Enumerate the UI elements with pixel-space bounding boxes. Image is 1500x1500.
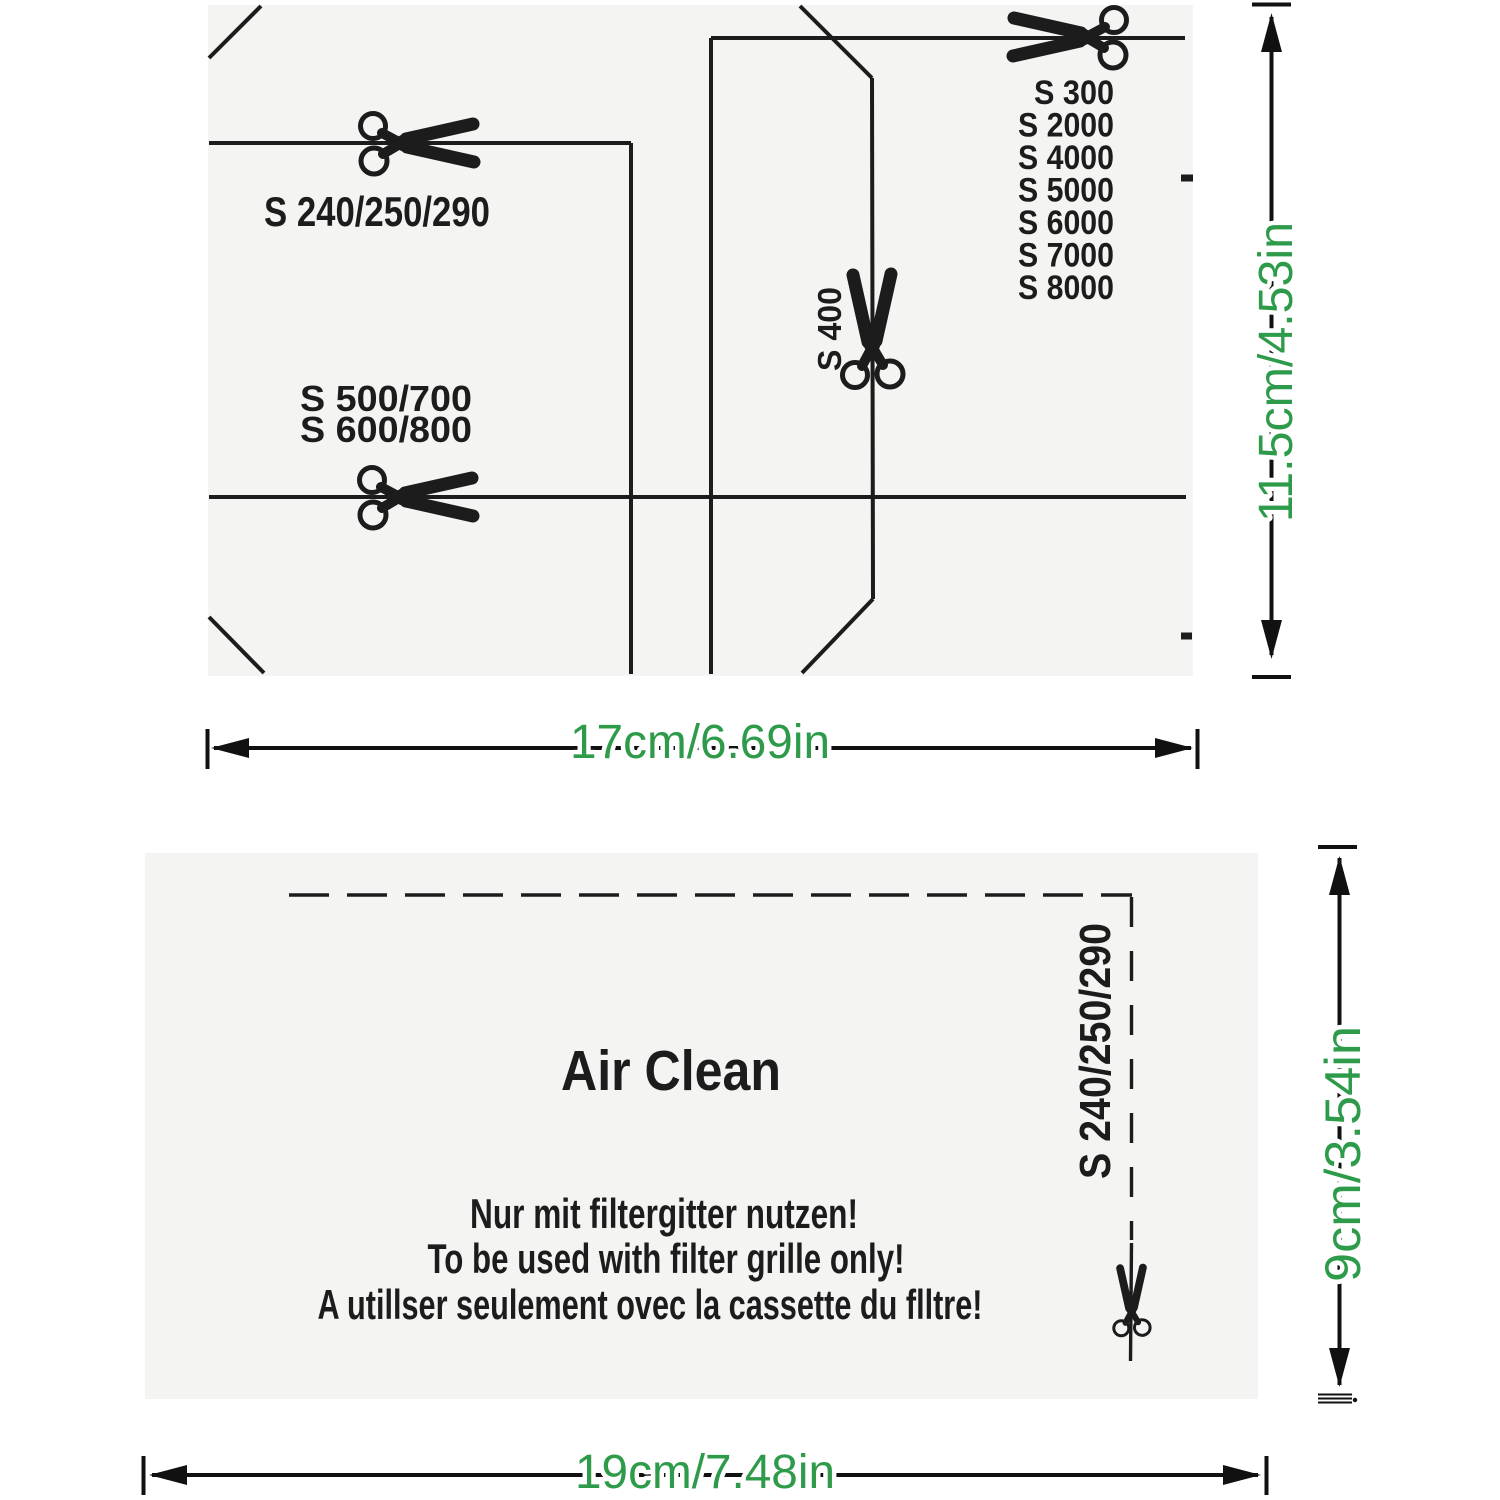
svg-text:S 240/250/290: S 240/250/290 [264,188,490,235]
svg-text:To be used with filter grille: To be used with filter grille only! [428,1235,905,1282]
svg-text:S 600/800: S 600/800 [300,409,472,450]
svg-text:9cm/3.54in: 9cm/3.54in [1315,1026,1371,1282]
svg-text:Nur mit filtergitter nutzen!: Nur mit filtergitter nutzen! [470,1190,858,1237]
svg-text:A utillser seulement ovec la c: A utillser seulement ovec la cassette du… [318,1281,983,1328]
svg-text:S 400: S 400 [811,287,848,371]
svg-text:S 8000: S 8000 [1018,269,1114,307]
svg-text:17cm/6.69in: 17cm/6.69in [570,716,830,769]
svg-text:11.5cm/4.53in: 11.5cm/4.53in [1250,222,1303,522]
svg-text:Air Clean: Air Clean [561,1039,781,1103]
svg-text:19cm/7.48in: 19cm/7.48in [575,1446,835,1499]
svg-text:S 240/250/290: S 240/250/290 [1071,923,1120,1179]
